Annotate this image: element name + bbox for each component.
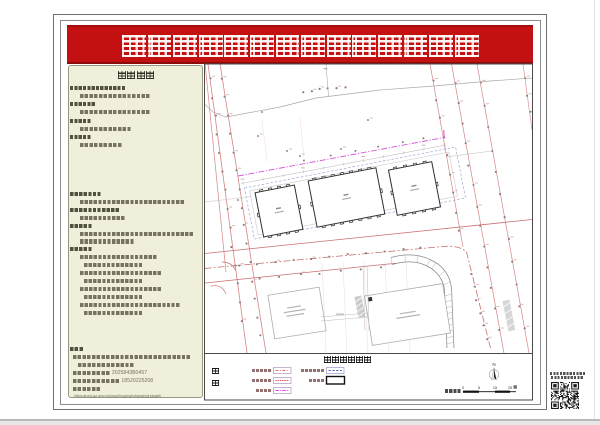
- svg-text:5: 5: [478, 386, 480, 390]
- svg-text:25: 25: [508, 386, 512, 390]
- svg-text:15: 15: [493, 386, 497, 390]
- svg-text:N: N: [492, 362, 495, 367]
- svg-text:0: 0: [462, 386, 464, 390]
